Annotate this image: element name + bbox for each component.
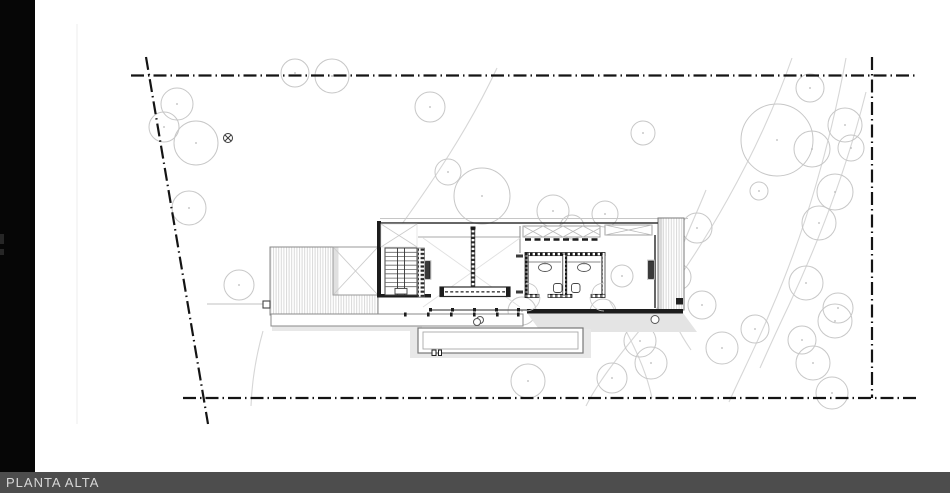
- void-x-brace: [381, 224, 417, 247]
- closets: [523, 225, 652, 240]
- left-sheet-margin: [0, 0, 35, 473]
- toilet: [554, 284, 563, 293]
- boundary-left-slanted: [146, 57, 208, 424]
- floor-plan-page: PLANTA ALTA: [0, 0, 950, 493]
- east-room-door: [648, 260, 655, 280]
- staircase: [385, 248, 431, 297]
- sidebar-mark: [0, 234, 4, 244]
- bathrooms: [516, 253, 605, 312]
- built-in-counter: [440, 287, 510, 297]
- toilet: [572, 284, 581, 293]
- deck-access-hatch: [263, 301, 270, 308]
- sink: [539, 264, 552, 272]
- sink: [578, 264, 591, 272]
- west-deck: [263, 247, 378, 315]
- site-plan-drawing: [0, 0, 950, 493]
- column: [474, 319, 481, 326]
- east-deck-band: [651, 218, 684, 324]
- walkway-strip: [271, 313, 523, 327]
- building-plan: [263, 218, 697, 358]
- column: [651, 316, 659, 324]
- bedroom-partition: [471, 227, 476, 291]
- drawing-title-bar: PLANTA ALTA: [0, 472, 950, 493]
- drawing-title-label: PLANTA ALTA: [0, 475, 99, 490]
- sidebar-mark: [0, 249, 4, 255]
- stair-wall-hatch: [418, 248, 425, 297]
- circled-x-symbol: [224, 134, 233, 143]
- stair-door-leaf: [426, 262, 431, 279]
